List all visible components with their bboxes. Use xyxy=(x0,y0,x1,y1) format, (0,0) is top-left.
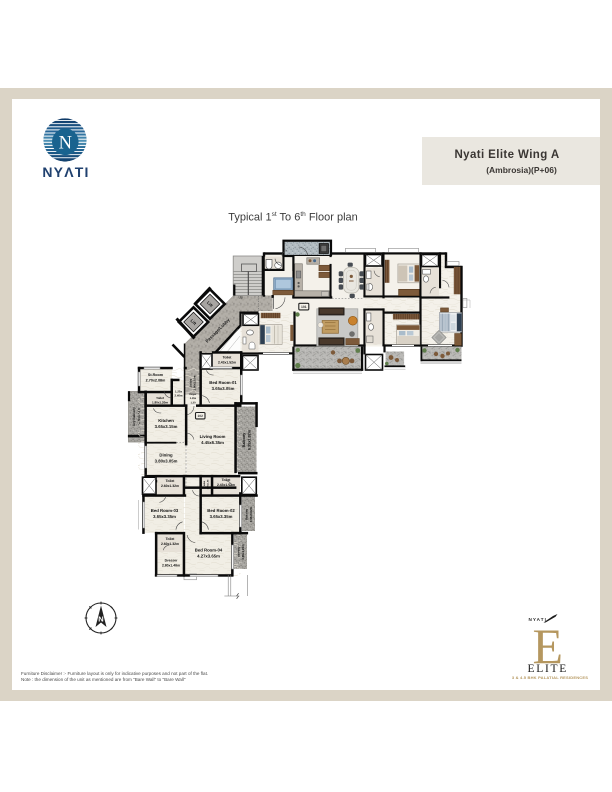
svg-text:3.65x3.35m: 3.65x3.35m xyxy=(210,514,233,519)
svg-text:Up: Up xyxy=(238,296,243,300)
svg-text:1.20x: 1.20x xyxy=(175,389,182,393)
svg-text:Toilet: Toilet xyxy=(166,479,176,483)
svg-text:Bed Room-02: Bed Room-02 xyxy=(207,508,235,513)
svg-text:2.80x1.48m: 2.80x1.48m xyxy=(162,564,180,568)
svg-text:3.65x3.15m: 3.65x3.15m xyxy=(155,424,178,429)
svg-text:3.65x3.35m: 3.65x3.35m xyxy=(153,514,176,519)
svg-text:N: N xyxy=(98,615,103,624)
svg-text:6.35x1.82m: 6.35x1.82m xyxy=(248,429,252,450)
svg-text:Balcony: Balcony xyxy=(244,508,248,520)
svg-text:1.20: 1.20 xyxy=(190,401,196,404)
svg-text:A toilet: A toilet xyxy=(203,481,206,489)
svg-text:2.70x2.08m: 2.70x2.08m xyxy=(146,378,166,382)
svg-text:3.65x3.05m: 3.65x3.05m xyxy=(212,386,235,391)
svg-text:3.65x1.23m: 3.65x1.23m xyxy=(241,544,245,560)
svg-text:Foyer: Foyer xyxy=(189,393,196,396)
svg-text:2.60x1.32m: 2.60x1.32m xyxy=(161,542,179,546)
svg-text:Living Room: Living Room xyxy=(200,434,226,439)
svg-text:102: 102 xyxy=(198,414,204,418)
svg-text:Dry Balcony: Dry Balcony xyxy=(132,407,136,426)
svg-text:Dresser: Dresser xyxy=(165,559,178,563)
svg-text:2.43x1.52m: 2.43x1.52m xyxy=(218,360,236,364)
svg-text:1.35x: 1.35x xyxy=(190,397,197,400)
svg-text:Kitchen: Kitchen xyxy=(158,418,174,423)
svg-text:4.45x6.35m: 4.45x6.35m xyxy=(201,440,224,445)
svg-text:2.40m: 2.40m xyxy=(175,394,183,398)
svg-text:Toilet: Toilet xyxy=(222,478,232,482)
svg-text:Toilet: Toilet xyxy=(156,396,164,400)
svg-text:2.60x1.32m: 2.60x1.32m xyxy=(161,484,179,488)
svg-text:Toilet: Toilet xyxy=(223,355,233,359)
svg-text:St.Room: St.Room xyxy=(148,373,164,377)
svg-text:3.95x0.92m: 3.95x0.92m xyxy=(249,506,253,522)
svg-text:Lobby: Lobby xyxy=(188,378,192,387)
svg-text:Bed Room-03: Bed Room-03 xyxy=(151,508,179,513)
svg-text:Bed Room-01: Bed Room-01 xyxy=(209,380,237,385)
svg-text:1.80x1.20m: 1.80x1.20m xyxy=(152,400,168,404)
svg-text:Dining: Dining xyxy=(159,453,173,458)
svg-text:101: 101 xyxy=(301,305,307,309)
svg-text:2.43x1.52m: 2.43x1.52m xyxy=(217,483,235,487)
svg-text:3.80x3.05m: 3.80x3.05m xyxy=(155,458,178,463)
svg-text:Balcony: Balcony xyxy=(242,432,246,448)
svg-text:1.95x1.06: 1.95x1.06 xyxy=(207,479,210,490)
svg-text:Bed Room-04: Bed Room-04 xyxy=(195,548,223,553)
svg-text:4.27x3.65m: 4.27x3.65m xyxy=(197,553,220,558)
svg-text:1.90x1.10m: 1.90x1.10m xyxy=(193,375,197,390)
svg-text:Toilet: Toilet xyxy=(166,537,176,541)
